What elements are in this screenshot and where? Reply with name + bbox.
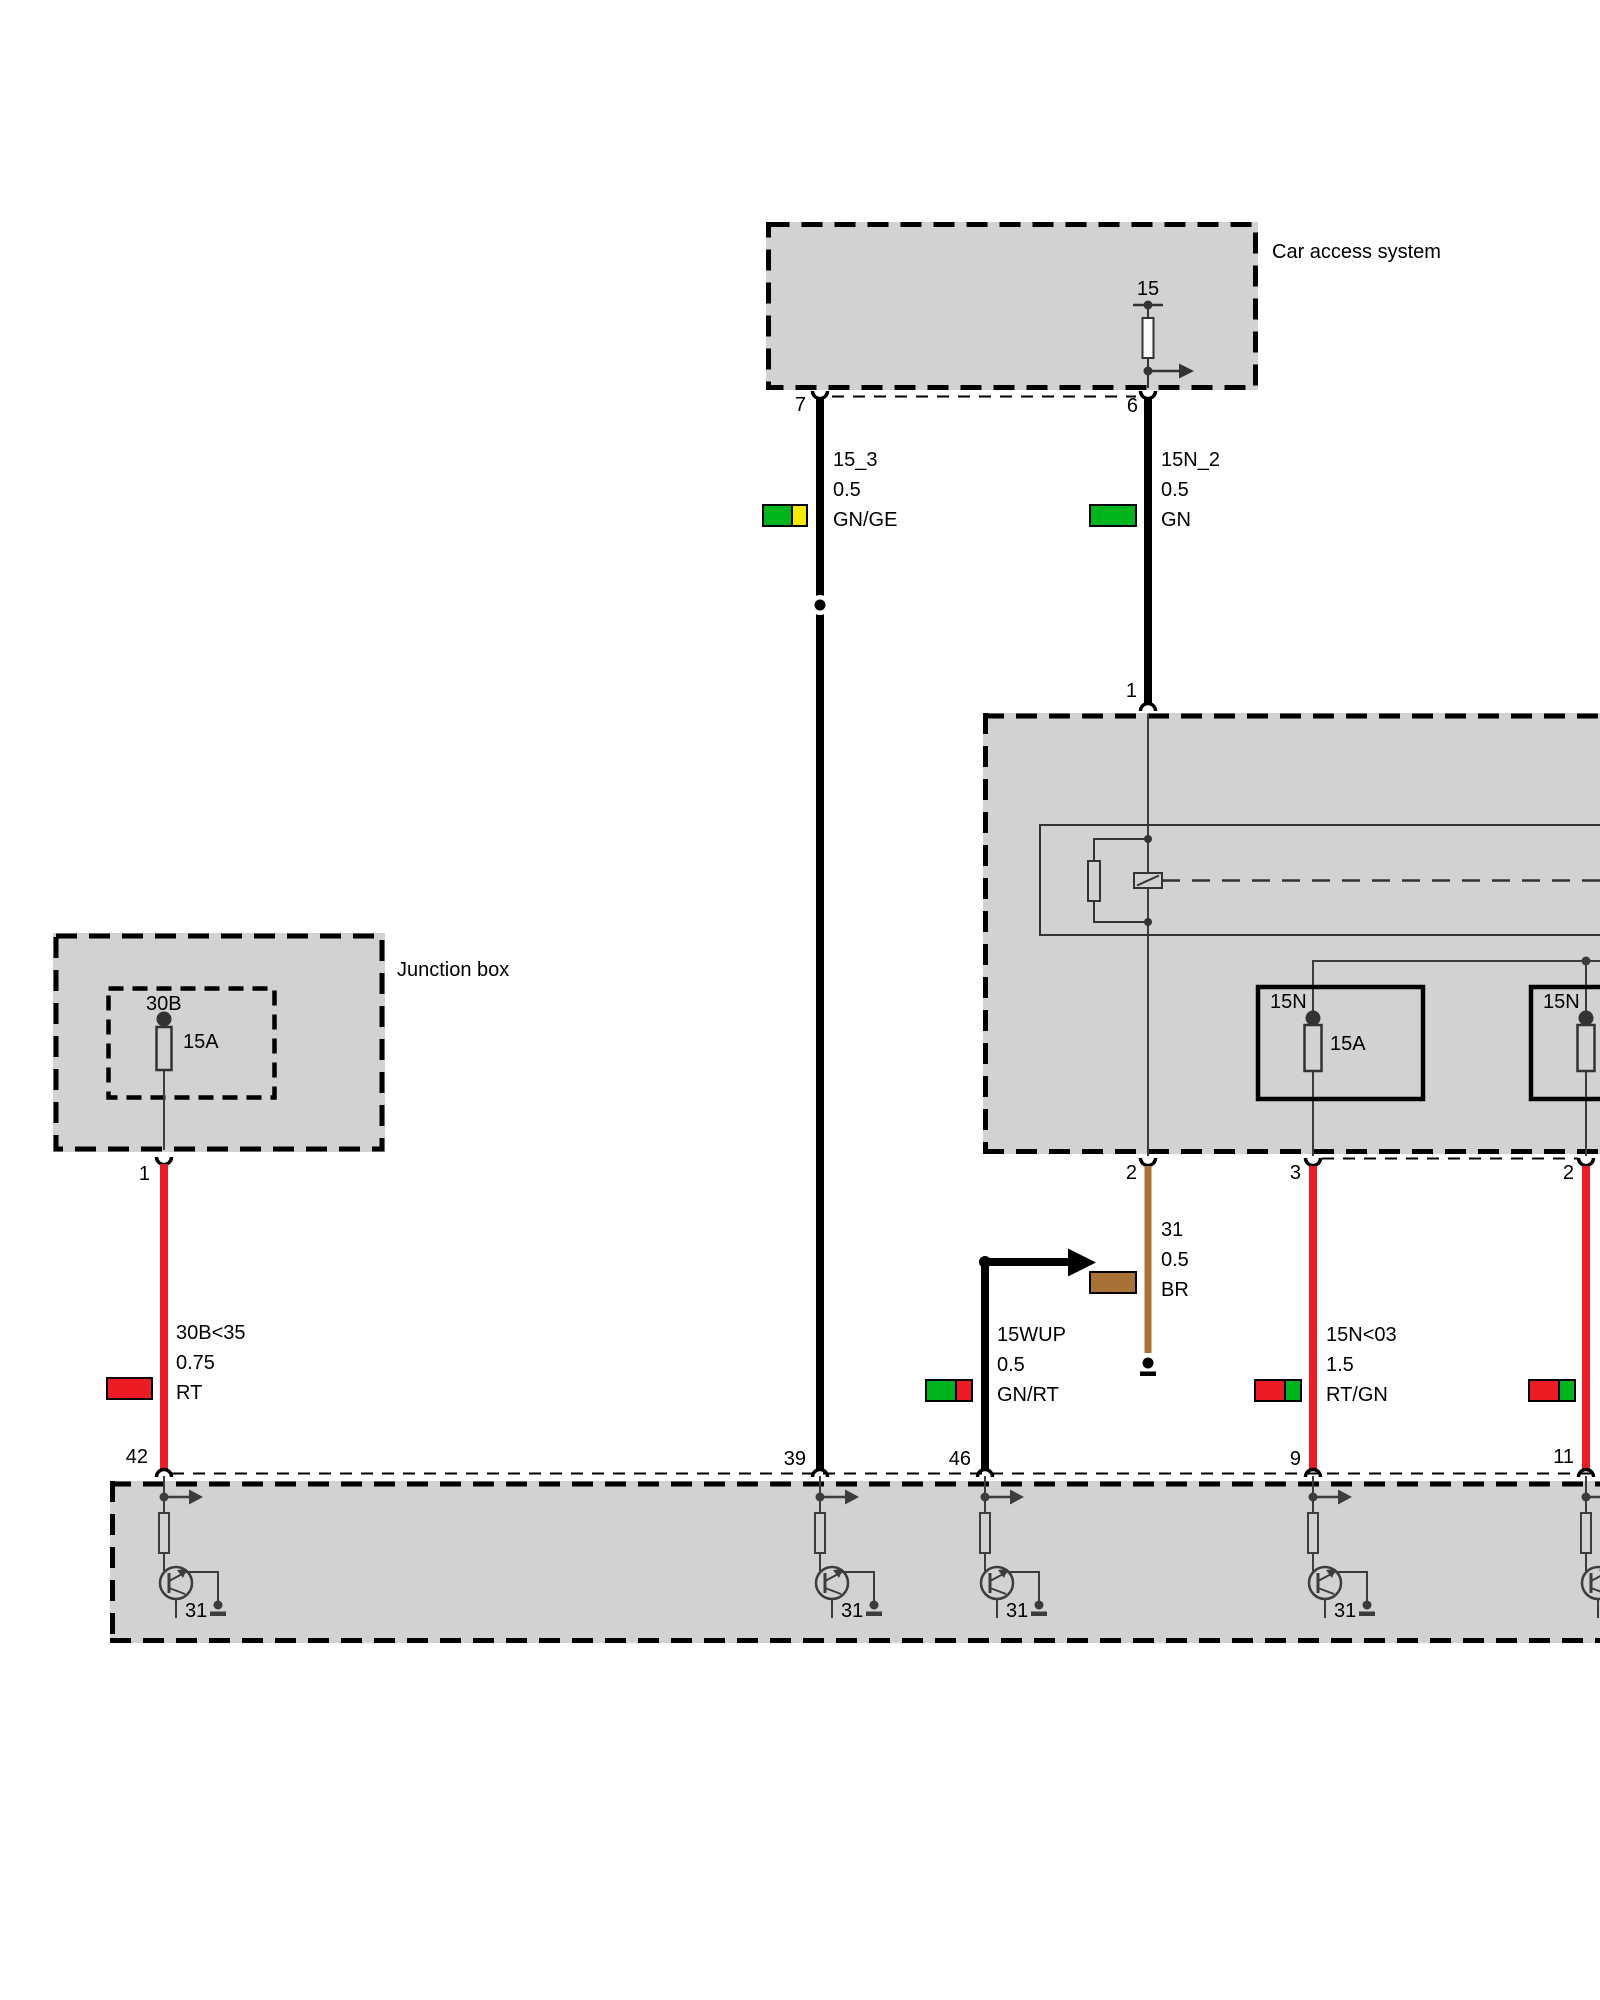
- wire-label-15n03: 15N<03 1.5 RT/GN: [1326, 1320, 1397, 1410]
- pin-9-label: 9: [1267, 1448, 1301, 1471]
- color-swatch-rt-gn-left: [1254, 1379, 1302, 1402]
- pin-39-label: 39: [772, 1448, 806, 1471]
- wire-label-31: 31 0.5 BR: [1161, 1215, 1189, 1305]
- pin-42-label: 42: [114, 1446, 148, 1469]
- relay-fuse-box: [983, 704, 1600, 1166]
- pin-39-socket: [813, 1470, 828, 1478]
- car-access-system-title: Car access system: [1272, 241, 1441, 263]
- fuse-30b-name-label: 30B: [146, 993, 182, 1015]
- ground-icon: [1143, 1358, 1154, 1369]
- junction-pin-1-socket: [157, 1157, 172, 1165]
- pin-1-label: 1: [1103, 680, 1137, 703]
- color-swatch-rt: [106, 1377, 153, 1400]
- color-swatch-br: [1089, 1271, 1137, 1294]
- pin-2-right-socket: [1579, 1158, 1594, 1166]
- color-swatch-gn-rt: [925, 1379, 973, 1402]
- pin-6-label: 6: [1104, 395, 1138, 418]
- pin-2-right-label: 2: [1540, 1162, 1574, 1185]
- wire-label-30b35: 30B<35 0.75 RT: [176, 1318, 246, 1408]
- relay-coil-icon: [1088, 861, 1100, 901]
- color-swatch-gn: [1089, 504, 1137, 527]
- junction-box: [53, 933, 385, 1165]
- color-swatch-gn-ge: [762, 504, 808, 527]
- ground-31-label-46: 31: [1006, 1600, 1028, 1623]
- junction-pin-1-label: 1: [116, 1163, 150, 1186]
- wiring-diagram-page: Car access system 15 7 6 15_3 0.5 GN/GE …: [0, 0, 1600, 2000]
- ground-31-label-42: 31: [185, 1600, 207, 1623]
- fuse-30b-rating-label: 15A: [183, 1031, 219, 1053]
- wire-label-15n-2: 15N_2 0.5 GN: [1161, 445, 1220, 535]
- pin-46-label: 46: [937, 1448, 971, 1471]
- pin-7-socket: [813, 391, 828, 399]
- terminal-15-label: 15: [1123, 278, 1173, 301]
- pin-2-left-label: 2: [1103, 1162, 1137, 1185]
- wiring-diagram-canvas: [0, 0, 1600, 2000]
- ground-31-label-9: 31: [1334, 1600, 1356, 1623]
- wire-label-15-3: 15_3 0.5 GN/GE: [833, 445, 897, 535]
- pin-11-label: 11: [1540, 1446, 1574, 1469]
- pin-2-left-socket: [1141, 1158, 1156, 1166]
- wire-31-br: [1140, 1166, 1156, 1376]
- color-swatch-rt-gn-right: [1528, 1379, 1576, 1402]
- ground-31-label-39: 31: [841, 1600, 863, 1623]
- fuse-right-name-label: 15N: [1543, 991, 1580, 1013]
- fuse-left-rating-label: 15A: [1330, 1033, 1366, 1055]
- car-access-system-box: [766, 222, 1258, 399]
- pin-42-socket: [157, 1470, 172, 1478]
- fuse-left-name-label: 15N: [1270, 991, 1307, 1013]
- junction-box-title: Junction box: [397, 959, 509, 981]
- wire-label-15wup: 15WUP 0.5 GN/RT: [997, 1320, 1066, 1410]
- pin-46-socket: [978, 1470, 993, 1478]
- wire-15-3-gn-ge: [810, 398, 830, 1470]
- pin-7-label: 7: [772, 394, 806, 417]
- pin-6-socket: [1141, 391, 1156, 399]
- pin-3-label: 3: [1267, 1162, 1301, 1185]
- fuse-30b-icon: [157, 1027, 172, 1070]
- pin-1-socket: [1141, 704, 1156, 712]
- pin-3-socket: [1306, 1158, 1321, 1166]
